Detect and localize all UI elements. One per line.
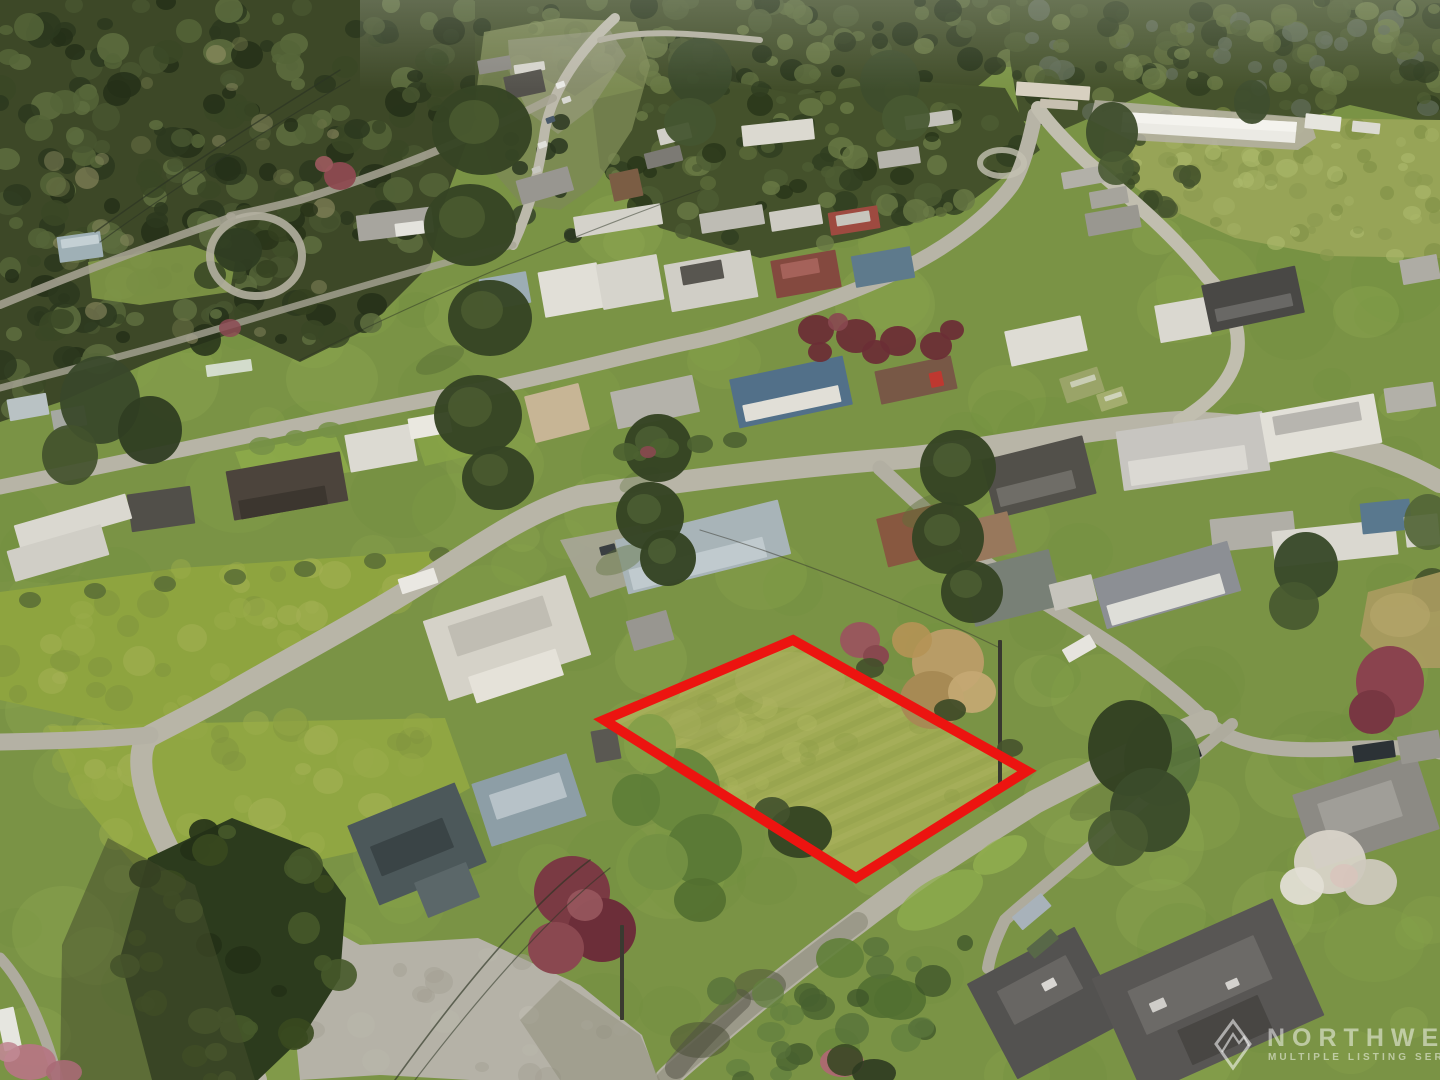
svg-text:NORTHWEST: NORTHWEST [1267,1024,1440,1052]
svg-text:MULTIPLE LISTING SERVICE: MULTIPLE LISTING SERVICE [1268,1052,1440,1063]
